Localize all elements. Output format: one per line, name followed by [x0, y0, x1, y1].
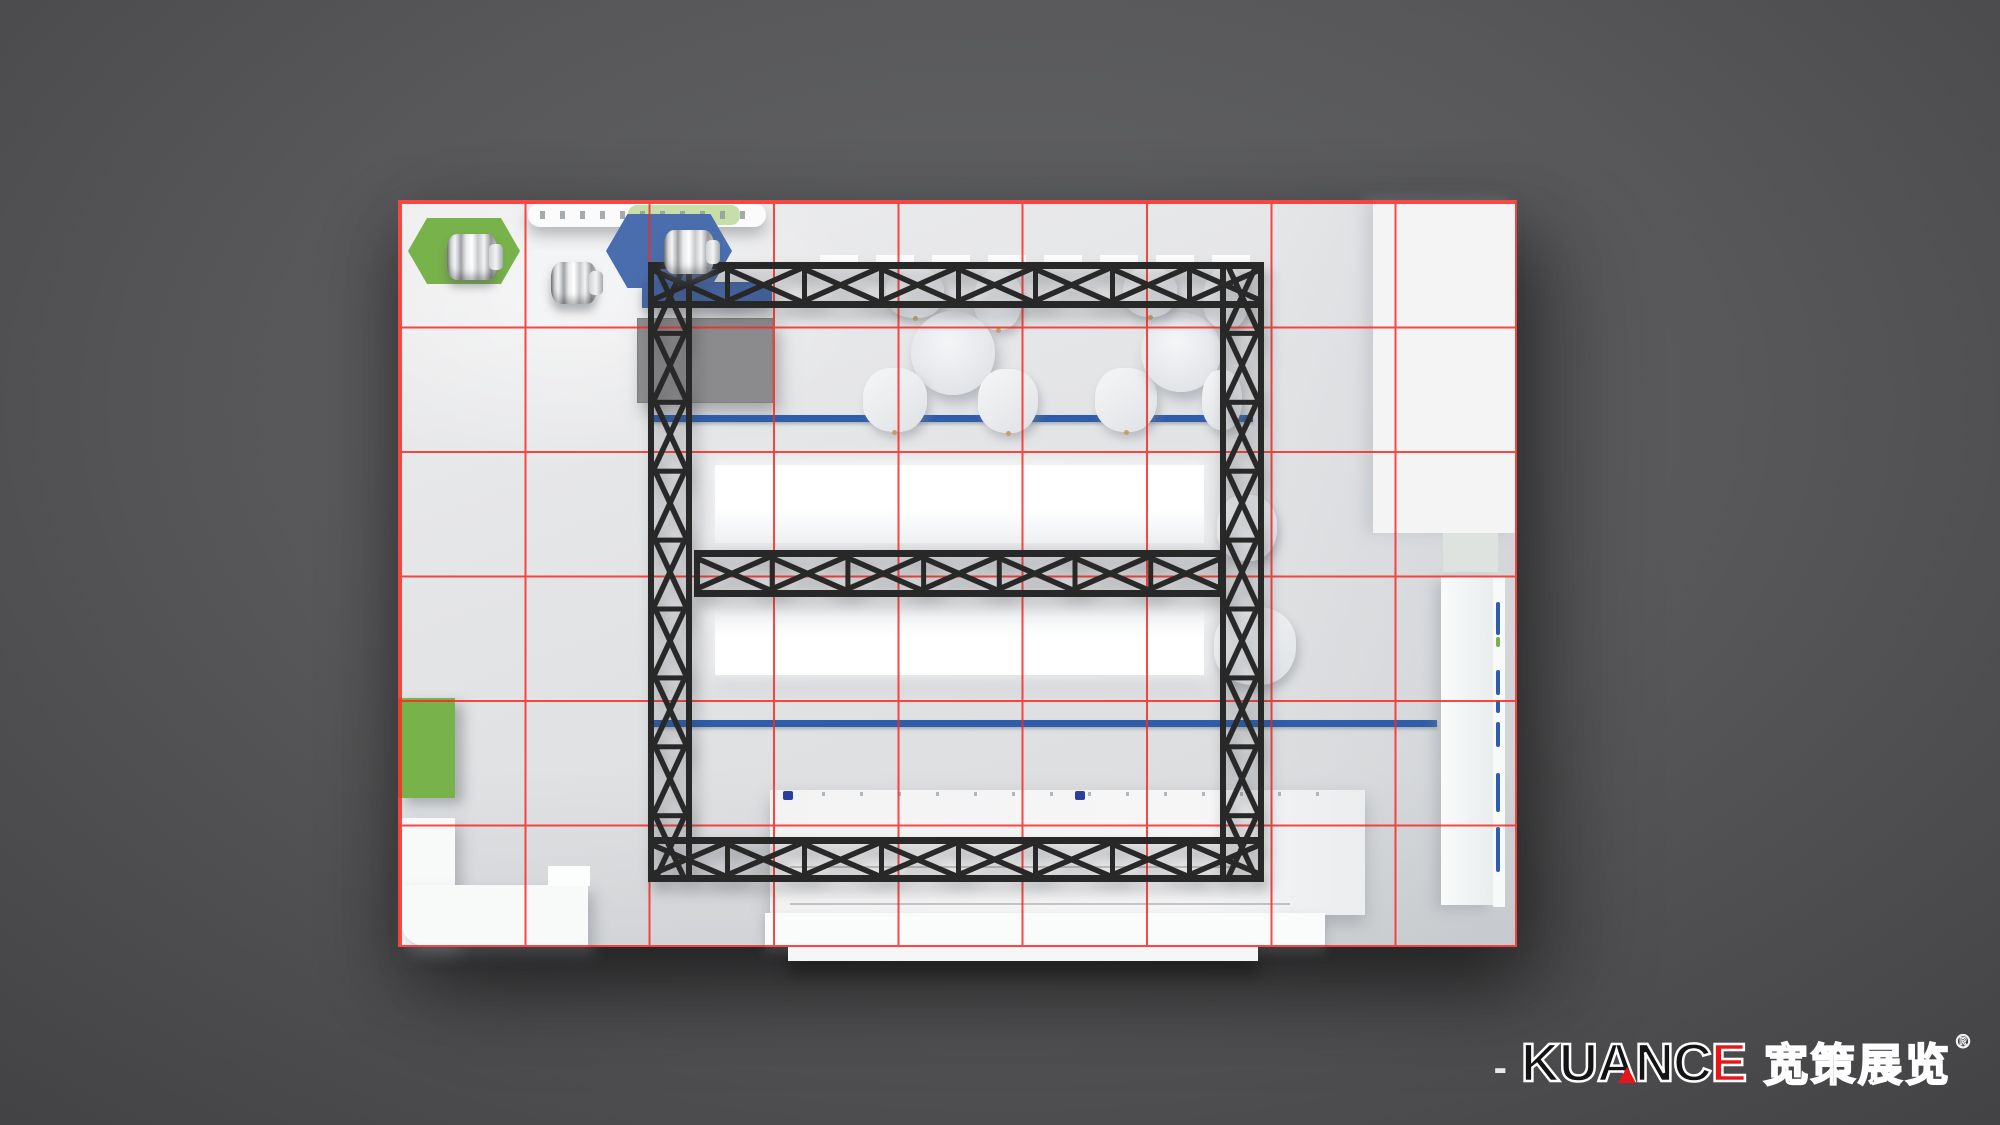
logo-chinese-name: 宽策展览 [1764, 1044, 1952, 1088]
logo-wordmark: KUANCE [1521, 1036, 1746, 1090]
truss-structure [398, 200, 1517, 947]
stage-extension-outside [788, 947, 1258, 961]
truss-column-left [648, 262, 692, 882]
render-canvas: - KUANCE 宽策展览 ® [0, 0, 2000, 1125]
logo-dash: - [1494, 1048, 1507, 1088]
product-cylinder-2 [551, 262, 597, 304]
booth-floor-plan [398, 200, 1517, 947]
logo-a-triangle-icon [1618, 1067, 1636, 1083]
brand-logo: - KUANCE 宽策展览 ® [1494, 1036, 1970, 1090]
truss-beam-middle [694, 550, 1224, 597]
registered-trademark-icon: ® [1956, 1032, 1970, 1054]
product-cylinder-3 [664, 230, 714, 274]
product-cylinder-1 [447, 234, 497, 280]
truss-beam-bottom [648, 837, 1264, 882]
logo-text-accent: E [1711, 1033, 1746, 1093]
truss-beam-top [648, 262, 1264, 308]
truss-column-right [1220, 262, 1264, 882]
logo-text-main: KUANC [1521, 1033, 1711, 1093]
